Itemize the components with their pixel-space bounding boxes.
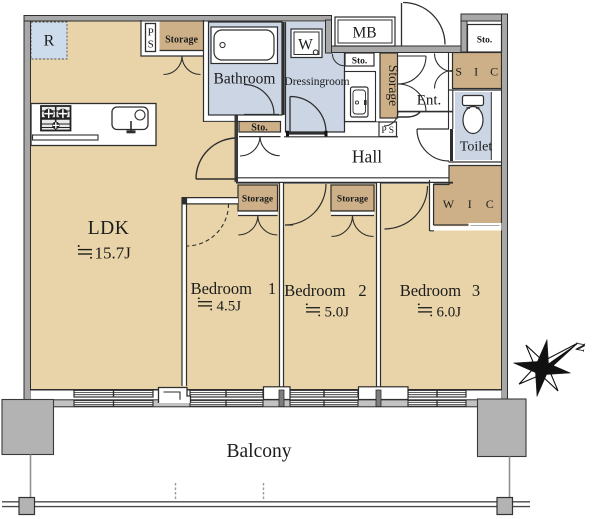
svg-text:LDK: LDK [88,218,130,239]
svg-text:1: 1 [268,279,276,298]
svg-text:S I C: S I C [455,65,502,79]
svg-text:W: W [298,37,313,54]
svg-text:4.5J: 4.5J [217,298,242,314]
svg-text:Balcony: Balcony [227,441,292,462]
svg-text:Hall: Hall [352,147,382,167]
svg-text:2: 2 [358,281,366,300]
svg-text:15.7J: 15.7J [95,244,132,263]
svg-text:3: 3 [472,281,480,300]
svg-text:Ent.: Ent. [417,93,442,109]
svg-text:P S: P S [381,126,394,136]
svg-text:Bathroom: Bathroom [214,71,276,88]
svg-text:Sto.: Sto. [251,123,268,134]
svg-text:Storage: Storage [337,195,368,205]
svg-text:R: R [44,33,55,50]
svg-text:W I C: W I C [443,197,500,211]
svg-text:Bedroom: Bedroom [400,281,462,300]
svg-text:Storage: Storage [242,195,273,205]
svg-text:Sto.: Sto. [477,36,493,46]
svg-text:6.0J: 6.0J [437,304,462,320]
svg-text:Bedroom: Bedroom [191,279,253,298]
svg-text:Storage: Storage [165,35,198,46]
svg-text:Storage: Storage [386,65,401,106]
svg-text:P: P [148,27,154,39]
svg-text:Toilet: Toilet [460,140,493,155]
svg-text:MB: MB [352,25,376,42]
svg-text:Sto.: Sto. [352,57,368,67]
svg-text:S: S [148,39,154,51]
svg-text:5.0J: 5.0J [325,304,350,320]
svg-text:Bedroom: Bedroom [284,281,346,300]
svg-text:Dressingroom: Dressingroom [284,76,349,88]
